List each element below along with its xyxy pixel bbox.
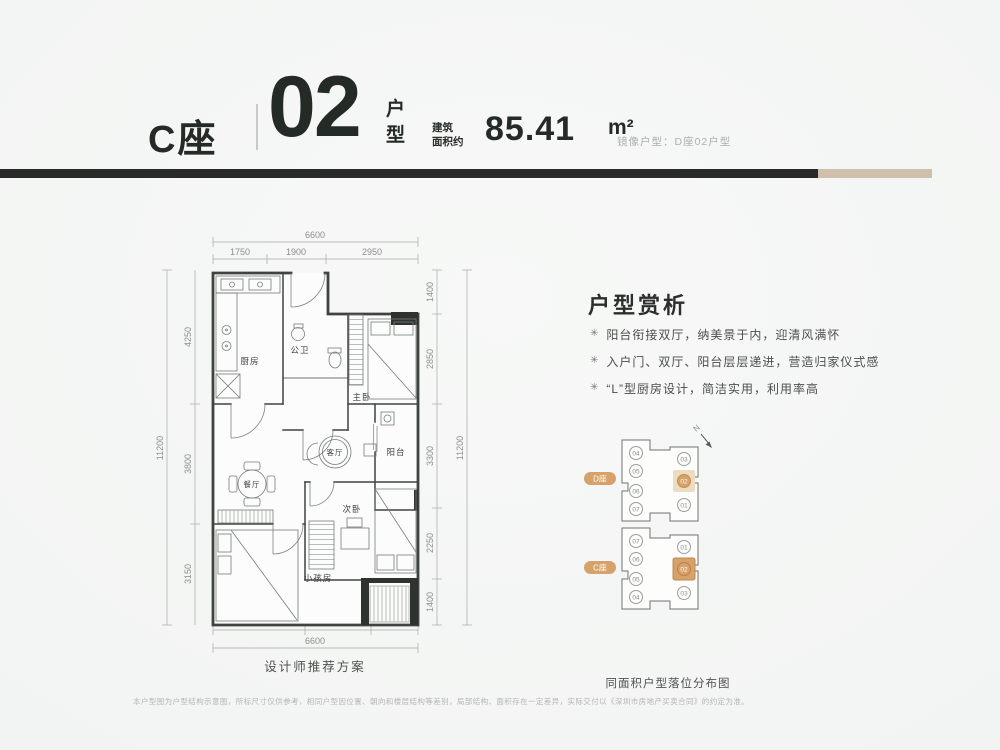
unit-c06: 06	[632, 557, 640, 564]
area-prefix: 建筑 面积约	[432, 122, 464, 149]
room-label-second-bedroom: 次卧	[342, 504, 361, 514]
floorplan-flyer: C座 02 户型 建筑 面积约 85.41 m² 镜像户型：D座02户型	[0, 0, 1000, 750]
dim-right-5: 1400	[425, 592, 435, 612]
analysis-bullet-3-text: “L”型厨房设计，简洁实用，利用率高	[606, 380, 819, 397]
header-divider	[256, 104, 258, 150]
unit-d03: 03	[680, 457, 688, 464]
analysis-bullet-2: ✳ 入户门、双厅、阳台层层递进，营造归家仪式感	[590, 353, 980, 370]
mirror-unit-note: 镜像户型：D座02户型	[617, 134, 731, 149]
north-arrow-icon: N	[692, 423, 712, 448]
unit-d04: 04	[632, 451, 640, 458]
analysis-bullet-1: ✳ 阳台衔接双厅，纳美景于内，迎清风满怀	[590, 326, 980, 343]
unit-c03: 03	[680, 591, 688, 598]
room-label-balcony: 阳台	[386, 447, 405, 457]
dim-top-2: 1900	[286, 247, 306, 257]
locator-caption: 同面积户型落位分布图	[606, 676, 731, 690]
analysis-bullet-2-text: 入户门、双厅、阳台层层递进，营造归家仪式感	[606, 353, 879, 370]
plan-caption: 设计师推荐方案	[264, 659, 366, 674]
unit-d02: 02	[680, 479, 688, 486]
building-c-label: C座	[593, 563, 607, 573]
unit-d01: 01	[680, 503, 688, 510]
dim-right-3: 3300	[425, 446, 435, 466]
unit-c07: 07	[632, 539, 640, 546]
room-label-kids-room: 小孩房	[304, 573, 333, 583]
area-value: 85.41	[485, 110, 575, 149]
dim-bottom-total: 6600	[305, 636, 325, 646]
unit-d07: 07	[632, 507, 640, 514]
room-label-dining: 餐厅	[244, 480, 261, 489]
disclaimer-text: 本户型图为户型结构示意图，所标尺寸仅供参考，相同户型因位置、朝向和楼层结构等差别…	[133, 696, 749, 707]
shaft-hatch	[370, 586, 409, 622]
dim-left-3: 3150	[183, 564, 193, 584]
hall-cabinet-icon	[218, 510, 273, 523]
unit-d05: 05	[632, 469, 640, 476]
header-rule-dark	[0, 169, 818, 178]
dim-top-3: 2950	[362, 247, 382, 257]
header-rule-tan	[818, 169, 932, 178]
north-label: N	[692, 423, 702, 434]
analysis-bullet-1-text: 阳台衔接双厅，纳美景于内，迎清风满怀	[606, 326, 840, 343]
dim-top-total: 6600	[305, 230, 325, 240]
analysis-bullets: ✳ 阳台衔接双厅，纳美景于内，迎清风满怀 ✳ 入户门、双厅、阳台层层递进，营造归…	[590, 326, 980, 407]
area-prefix-line1: 建筑	[432, 122, 464, 136]
dim-left-total: 11200	[155, 436, 165, 460]
dim-top-1: 1750	[230, 247, 250, 257]
analysis-bullet-3: ✳ “L”型厨房设计，简洁实用，利用率高	[590, 380, 980, 397]
unit-number: 02	[268, 58, 360, 157]
dim-left-1: 4250	[183, 327, 193, 347]
dim-right-4: 2250	[425, 533, 435, 553]
unit-c05: 05	[632, 577, 640, 584]
dim-right-2: 2850	[425, 349, 435, 369]
dim-right-total: 11200	[455, 436, 465, 460]
area-prefix-line2: 面积约	[432, 136, 464, 150]
room-label-living: 客厅	[327, 447, 344, 457]
building-d-outline: 04 05 06 07 03 02 01 D座	[584, 440, 698, 521]
asterisk-bullet-icon: ✳	[590, 326, 599, 341]
room-label-bath: 公卫	[290, 345, 309, 355]
room-label-master: 主卧	[352, 392, 371, 402]
asterisk-bullet-icon: ✳	[590, 353, 599, 368]
dim-left-2: 3800	[183, 454, 193, 474]
asterisk-bullet-icon: ✳	[590, 380, 599, 395]
unit-c04: 04	[632, 595, 640, 602]
building-c-outline: 07 06 05 04 01 02 03 C座	[584, 528, 698, 609]
floorplan-drawing: 6600 1750 1900 2950 11200 4250 3800 3150…	[128, 212, 523, 697]
unit-c02: 02	[680, 567, 688, 574]
unit-c01: 01	[680, 545, 688, 552]
building-label: C座	[148, 108, 217, 163]
room-label-kitchen: 厨房	[240, 356, 259, 366]
header-rule	[0, 169, 932, 178]
unit-locator-diagram: N 04 05 06 07 03 02 01 D座	[580, 415, 760, 695]
unit-d06: 06	[632, 489, 640, 496]
unit-type-label: 户型	[386, 97, 408, 148]
dim-right-1: 1400	[425, 282, 435, 302]
analysis-title: 户型赏析	[588, 288, 688, 320]
building-d-label: D座	[593, 474, 607, 484]
